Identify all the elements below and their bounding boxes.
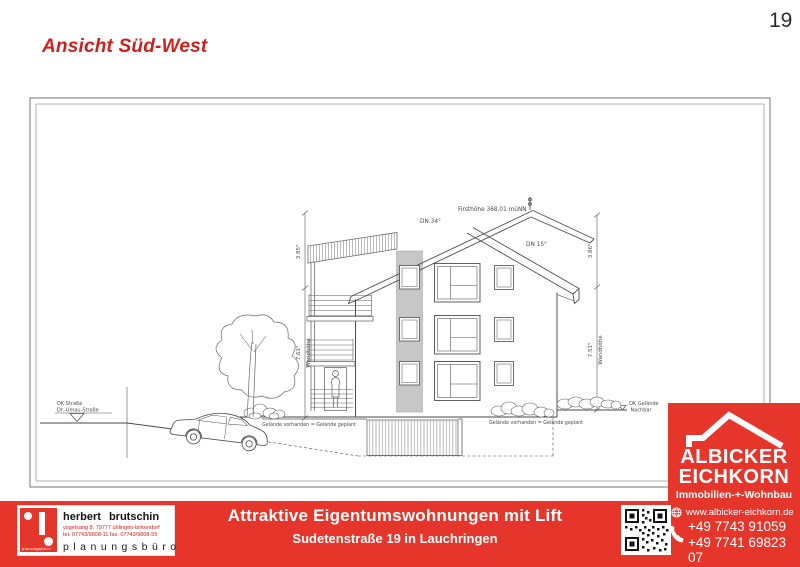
agency-logo-box: ALBICKER EICHKORN Immobilien-+-Wohnbau [668, 403, 800, 503]
ground-note-left: Gelände vorhanden = Gelände geplant [262, 422, 356, 428]
logo-dot [44, 537, 53, 546]
architect-text: herbert brutschin vogelsang 8, 79777 ühl… [63, 511, 173, 553]
garage-door [367, 420, 458, 456]
svg-text:7.61⁵: 7.61⁵ [295, 346, 302, 360]
svg-text:3.85⁵: 3.85⁵ [295, 245, 302, 259]
svg-text:OK Straße: OK Straße [57, 401, 82, 407]
svg-text:Wandhöhe: Wandhöhe [598, 335, 604, 365]
agency-phone-2: +49 7741 69823 07 [688, 535, 800, 565]
svg-text:OK Gelände: OK Gelände [629, 401, 659, 407]
footer-headline-block: Attraktive Eigentumswohnungen mit Lift S… [185, 506, 605, 546]
globe-icon [671, 507, 682, 518]
phone-icon [668, 522, 686, 544]
architect-box: planungsbüro herbert brutschin vogelsang… [17, 505, 175, 556]
pitch-right-label: DN 15° [526, 242, 547, 248]
subheadline: Sudetenstraße 19 in Lauchringen [185, 531, 605, 546]
svg-text:3.86⁵: 3.86⁵ [587, 244, 594, 258]
svg-text:Dr.-Umau-Straße: Dr.-Umau-Straße [57, 408, 99, 414]
agency-tagline: Immobilien-+-Wohnbau [668, 489, 800, 501]
headline: Attraktive Eigentumswohnungen mit Lift [185, 506, 605, 526]
roof-icon [679, 409, 789, 449]
architect-phones: tel. 07743/9808-11 fax. 07743/9808-55 [63, 532, 173, 538]
logo-bar [39, 512, 45, 535]
svg-text:Wandhöhe: Wandhöhe [306, 338, 312, 368]
architect-name: herbert brutschin [63, 511, 173, 523]
architect-profession: planungsbüro [63, 541, 173, 553]
pitch-left-label: DN 34° [420, 219, 441, 225]
agency-phone-1: +49 7743 91059 [688, 519, 786, 534]
large-windows [435, 264, 481, 401]
architect-address: vogelsang 8, 79777 ühlingen-birkendorf [63, 525, 173, 531]
svg-text:Nachbar: Nachbar [631, 408, 653, 414]
qr-code [621, 505, 671, 555]
ground-note-right: Gelände vorhanden = Gelände geplant [489, 420, 583, 426]
svg-text:7.51⁵: 7.51⁵ [587, 343, 594, 357]
expose-page: Ansicht Süd-West 19 [0, 0, 800, 567]
logo-caption: planungsbüro [22, 546, 51, 551]
website-row: www.albicker-eichkorn.de [671, 507, 794, 518]
logo-dot [24, 512, 32, 520]
agency-website: www.albicker-eichkorn.de [686, 507, 794, 518]
architect-logo: planungsbüro [20, 508, 57, 552]
ridge-label: Firsthöhe 368.01 müNN [458, 207, 527, 213]
agency-name-2: EICHKORN [668, 466, 800, 489]
